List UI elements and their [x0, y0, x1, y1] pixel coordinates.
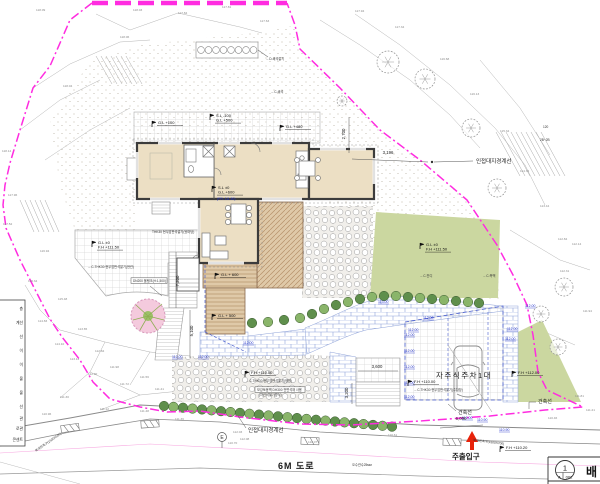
deciduous-tree — [488, 179, 506, 197]
spot-elevation: 117.52 — [3, 222, 13, 226]
deciduous-tree — [415, 69, 435, 89]
hedge-shrub — [197, 405, 207, 415]
lawn-main — [370, 212, 500, 298]
finish-note: ←C-THK30 현무암판석깔기(주차장) — [414, 387, 463, 392]
dimension-text: 5,100 — [189, 325, 194, 336]
spot-elevation: 116.13 — [470, 92, 480, 96]
sheet-title: 배 — [586, 464, 597, 479]
legend-row-text: 이 — [20, 362, 24, 367]
legend-row-text: 선 — [20, 404, 24, 409]
deciduous-tree — [555, 278, 573, 296]
finish-note: ←C-쇄석 — [271, 89, 283, 94]
boundary-label-right: 인접대지경계선 — [476, 157, 511, 165]
level-marker-text: F.H +110.50 — [251, 370, 273, 375]
spot-elevation: 111.81 — [575, 394, 584, 398]
sheet-number: 1 — [563, 464, 567, 473]
hedge-shrub — [302, 414, 312, 424]
hedge-shrub — [415, 293, 425, 303]
spot-elevation: 111.21 — [586, 408, 595, 412]
deciduous-tree — [337, 96, 347, 106]
wall-elevation-tag: 112.00 — [404, 365, 414, 369]
hedge-shrub — [331, 300, 341, 310]
wall-elevation-tag: 112.00 — [404, 395, 414, 399]
legend-row-text: 물 — [20, 390, 24, 395]
flowering-tree — [131, 299, 165, 333]
deciduous-tree — [462, 119, 480, 137]
hedge-shrub — [254, 410, 264, 420]
spot-elevation: 112.84 — [95, 349, 105, 353]
spot-elevation: 114.83 — [38, 319, 48, 323]
spot-elevation: 111.48 — [140, 409, 149, 413]
hedge-shrub — [247, 318, 257, 328]
hedge-shrub — [403, 292, 413, 302]
hedge-shrub — [159, 401, 169, 411]
spot-elevation: 111.94 — [583, 309, 592, 313]
finish-note: ←D-쇄석깔기 — [266, 56, 284, 61]
hedge-shrub — [343, 297, 353, 307]
spot-elevation: 117.84 — [178, 11, 188, 15]
spot-elevation: 112.30 — [88, 372, 98, 376]
building-line-label-left: 건축선 — [458, 409, 472, 416]
wall-elevation-tag: 112.00 — [404, 349, 414, 353]
spot-elevation: 118.06 — [120, 35, 130, 39]
hedge-shrub — [463, 297, 473, 307]
hedge-shrub — [355, 294, 365, 304]
spot-elevation: 111.30 — [60, 395, 69, 399]
hedge-shrub — [264, 411, 274, 421]
spot-elevation: 113.44 — [540, 204, 550, 208]
spot-elevation: 112.08 — [240, 437, 250, 441]
road-label: 6M 도로 — [278, 461, 315, 471]
hedge-shrub — [367, 292, 377, 302]
dining-set — [225, 204, 251, 225]
hedge-shrub — [292, 413, 302, 423]
wall-elevation-tag: 112.00 — [243, 341, 253, 345]
parking-area — [405, 306, 503, 412]
finish-note: 2B~2B — [540, 138, 550, 142]
hedge-shrub — [283, 412, 293, 422]
spot-elevation: 112.31 — [560, 269, 570, 273]
stone-garden-south — [172, 353, 330, 402]
spot-elevation: 110.46 — [548, 416, 558, 420]
wall-elevation-tag: 112.00 — [525, 304, 535, 308]
site-plan-drawing: E 인접대지경계선 인접대지경계선 건축선 건축선 자주식주차1대 6M 도로 … — [0, 0, 600, 484]
finish-note: ←C-측백 — [483, 273, 495, 278]
spot-elevation: 114.10 — [55, 342, 65, 346]
spot-elevation: 111.56 — [140, 375, 149, 379]
hedge-shrub — [427, 294, 437, 304]
level-marker-text: F.H +112.00 — [518, 370, 540, 375]
legend-row-text: 선 — [20, 334, 24, 339]
legend-row-text: 층 — [20, 306, 24, 311]
hedge-shrub — [451, 296, 461, 306]
level-marker-text: G.L +600 — [218, 190, 235, 195]
level-marker-text: F.H +110.20 — [506, 445, 528, 450]
spot-elevation: 113.12 — [70, 357, 80, 361]
spot-elevation: 117.96 — [8, 193, 18, 197]
hedge-shrub — [273, 412, 283, 422]
spot-elevation: 110.70 — [228, 441, 238, 445]
spot-elevation: 117.34 — [395, 25, 405, 29]
legend-row-text: 계선 — [16, 320, 23, 325]
entry-porch — [177, 258, 199, 291]
spot-elevation: 110.61 — [388, 433, 398, 437]
hedge-shrub — [307, 309, 317, 319]
parking-label: 자주식주차1대 — [436, 371, 492, 380]
finish-note: 120 — [543, 125, 549, 129]
stone-path-east — [302, 206, 373, 298]
spot-elevation: 116.34 — [28, 279, 38, 283]
legend-box: 층계선선이이물물선관로관콘센트 — [0, 300, 25, 446]
level-marker-text: F.H +111.50 — [98, 245, 120, 250]
dimension-text: 6,000 — [456, 416, 467, 421]
dimension-text: 3,600 — [372, 364, 383, 369]
sheet-col-a: A — [558, 475, 561, 480]
finish-note: DN200 물탱크(H:1,500) — [133, 278, 166, 283]
legend-row-text: 이 — [20, 348, 24, 353]
legend-row-text: 관 — [20, 416, 24, 421]
level-marker-text: G.L +100 — [158, 120, 175, 125]
hedge-shrub — [439, 295, 449, 305]
hedge-shrub — [391, 291, 401, 301]
wall-elevation-tag: 112.00 — [172, 355, 182, 359]
spot-elevation: 117.94 — [355, 9, 365, 13]
dimension-text: 2,700 — [341, 128, 346, 139]
hedge-shrub — [349, 418, 359, 428]
wall-elevation-tag: 112.00 — [507, 327, 517, 331]
finish-note: 오수관수25мм — [352, 462, 372, 467]
finish-note: THK30 현무암판석깔기(뒷마당) — [152, 229, 194, 234]
hedge-shrub — [207, 406, 217, 416]
hedge-shrub — [279, 315, 289, 325]
wall-elevation-tag: 110.90 — [477, 418, 487, 422]
level-marker-text: G.L +500 — [216, 118, 233, 123]
finish-note: (자연석쌓기방식) — [259, 392, 282, 397]
spot-elevation: 116.94 — [40, 249, 50, 253]
deciduous-tree — [377, 51, 399, 73]
wall-elevation-tag: 110.90 — [499, 428, 509, 432]
spot-elevation: 118.14 — [2, 149, 12, 153]
spot-elevation: 111.98 — [110, 365, 119, 369]
finish-note: ←C-THK30 현무암판석깔기(현관) — [88, 264, 134, 269]
dimension-text: 3,200 — [344, 387, 349, 398]
legend-row-text: 콘센트 — [13, 437, 24, 442]
deciduous-tree — [550, 339, 566, 355]
finish-note: 보강토옹벽 DH300 전면석재 사용 — [257, 387, 302, 392]
spot-elevation: 118.03 — [133, 8, 143, 12]
spot-elevation: 111.41 — [155, 387, 164, 391]
spot-elevation: 111.12 — [100, 407, 109, 411]
sheet-col-b: 002 — [566, 475, 573, 480]
level-marker-text: G.L +480 — [286, 124, 303, 129]
wall-elevation-tag: 112.00 — [404, 333, 414, 337]
spot-elevation: 111.36 — [175, 417, 184, 421]
spot-elevation: 110.96 — [42, 412, 52, 416]
spot-elevation: 111.72 — [120, 382, 129, 386]
spot-elevation: 116.68 — [440, 57, 450, 61]
hedge-shrub — [263, 317, 273, 327]
spot-elevation: 110.07 — [308, 440, 318, 444]
hedge-shrub — [245, 409, 255, 419]
spot-elevation: 113.65 — [78, 327, 88, 331]
spot-elevation: 118.04 — [63, 84, 73, 88]
hedge-shrub — [368, 420, 378, 430]
spot-elevation: 114.32 — [520, 169, 530, 173]
level-marker-text: G.L + 500 — [218, 313, 236, 318]
finish-note: ←C-THK30 현무암판석깔기(정원) — [246, 378, 292, 383]
legend-row-text: 로관 — [16, 426, 23, 431]
top-planter — [196, 42, 268, 58]
spot-elevation: 115.48 — [58, 297, 68, 301]
spot-elevation: 118.09 — [36, 8, 46, 12]
marker-sub-text: (FFL 111.50) — [217, 197, 235, 201]
level-marker-text: F.H +110.00 — [414, 379, 436, 384]
house-east-wing — [309, 149, 374, 199]
spot-elevation: 115.34 — [500, 129, 510, 133]
hedge-shrub — [340, 418, 350, 428]
deciduous-tree — [533, 306, 549, 322]
hedge-shrub — [311, 415, 321, 425]
spot-elevation: 117.81 — [222, 5, 232, 9]
dimension-text: 7,200 — [175, 275, 180, 286]
level-marker-text: G.L + 600 — [221, 272, 239, 277]
level-marker-text: F.H +111.50 — [426, 247, 448, 252]
wall-elevation-tag: 112.00 — [198, 355, 208, 359]
finish-note: ←C-잔디 — [420, 273, 432, 278]
dimension-text: 3,196 — [383, 150, 394, 155]
wall-elevation-tag: 112.00 — [505, 337, 515, 341]
boundary-label-bottom: 인접대지경계선 — [248, 426, 283, 434]
building-line-label-right: 건축선 — [538, 398, 552, 405]
spot-elevation: 112.14 — [572, 242, 582, 246]
legend-row-text: 물 — [20, 376, 24, 381]
entrance-label: 주출입구 — [452, 451, 480, 461]
hedge-shrub — [169, 402, 179, 412]
wall-elevation-tag: 113.00 — [378, 300, 388, 304]
wall-elevation-tag: 112.00 — [423, 316, 433, 320]
hedge-shrub — [295, 313, 305, 323]
hedge-shrub — [319, 304, 329, 314]
wall-elevation-tag: 112.00 — [408, 328, 418, 332]
hedge-shrub — [474, 298, 484, 308]
spot-elevation: 112.03 — [233, 430, 243, 434]
spot-elevation: 117.63 — [260, 19, 270, 23]
spot-elevation: 112.84 — [558, 237, 568, 241]
